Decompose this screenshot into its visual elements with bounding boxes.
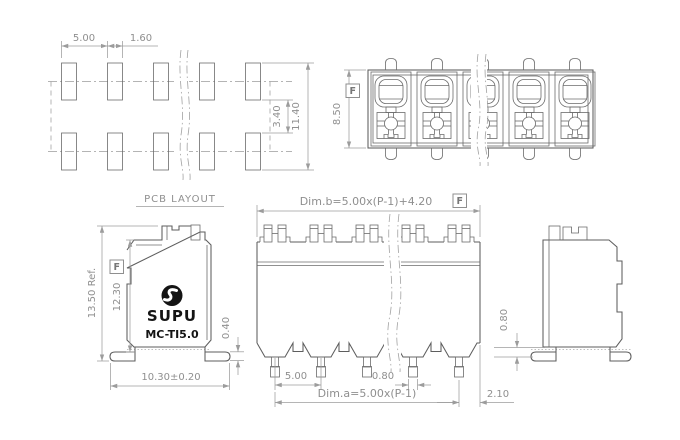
dim-pin-pitch: 5.00 xyxy=(275,358,321,390)
front-view: Dim.b=5.00x(P-1)+4.20 F 5.00 0.80 Di xyxy=(257,194,514,407)
dim-standoff: 0.80 xyxy=(494,309,545,371)
dim-body-height-label: 12.30 xyxy=(112,283,123,312)
dim-depth-label: 8.50 xyxy=(332,103,343,125)
dim-edge-offset: 2.10 xyxy=(437,345,514,407)
dim-pitch-label: 5.00 xyxy=(73,33,95,44)
pcb-layout-title: PCB LAYOUT xyxy=(144,194,216,205)
lever-hatch xyxy=(549,226,560,240)
dim-foot-thickness-label: 0.40 xyxy=(221,317,232,339)
dim-pad-width-label: 1.60 xyxy=(130,33,152,44)
dim-row-gap-label: 3.40 xyxy=(272,105,283,127)
datum-f-flag: F xyxy=(453,194,467,208)
dim-body-width-label: 10.30±0.20 xyxy=(141,372,200,383)
dim-pin-width-label: 0.80 xyxy=(372,371,394,382)
dim-a-label: Dim.a=5.00x(P-1) xyxy=(318,387,417,400)
dim-b: Dim.b=5.00x(P-1)+4.20 F xyxy=(257,194,480,237)
pcb-pads xyxy=(62,63,261,170)
side-view-right: 0.80 xyxy=(494,226,631,371)
model-number: MC-TI5.0 xyxy=(145,328,199,341)
engineering-drawing-sheet: 5.00 1.60 3.40 11.40 PCB LAYOUT xyxy=(0,0,680,440)
side-view-left: SUPU MC-TI5.0 13.50 Ref. F 12.30 10.30±0… xyxy=(87,225,244,390)
drawing-canvas: 5.00 1.60 3.40 11.40 PCB LAYOUT xyxy=(0,0,680,440)
datum-f-label: F xyxy=(114,262,121,273)
dim-connector-depth: 8.50 F xyxy=(332,70,366,148)
brand-name: SUPU xyxy=(147,307,197,325)
dim-pin-pitch-label: 5.00 xyxy=(285,371,307,382)
dim-pad-pitch: 5.00 1.60 xyxy=(62,33,159,58)
castellations xyxy=(260,225,474,242)
datum-f-flag: F xyxy=(346,84,360,98)
dim-edge-offset-label: 2.10 xyxy=(487,389,509,400)
datum-f-flag: F xyxy=(110,260,124,274)
bottom-profile xyxy=(257,343,480,357)
datum-f-label: F xyxy=(350,86,357,97)
solder-foot-left xyxy=(110,347,135,361)
dim-b-label: Dim.b=5.00x(P-1)+4.20 xyxy=(300,195,433,208)
dim-body-height: F 12.30 xyxy=(110,240,135,352)
dim-row-gap: 3.40 xyxy=(262,100,293,133)
top-tab xyxy=(563,227,587,240)
dim-body-width: 10.30±0.20 xyxy=(111,363,230,390)
dim-overall-height-label: 13.50 Ref. xyxy=(87,268,98,318)
dim-foot-thickness: 0.40 xyxy=(221,317,244,375)
solder-foot-right xyxy=(205,347,230,361)
dim-total-height-label: 11.40 xyxy=(291,102,302,131)
pcb-layout-view: 5.00 1.60 3.40 11.40 PCB LAYOUT xyxy=(48,33,314,207)
dim-a: Dim.a=5.00x(P-1) xyxy=(275,380,459,407)
top-view: 8.50 F xyxy=(332,54,595,166)
dim-standoff-label: 0.80 xyxy=(499,309,510,331)
supu-logo-icon xyxy=(162,285,183,306)
body-outline xyxy=(543,240,622,347)
solder-foot-left xyxy=(531,347,556,361)
solder-foot-right xyxy=(610,347,631,361)
datum-f-label: F xyxy=(457,196,464,207)
